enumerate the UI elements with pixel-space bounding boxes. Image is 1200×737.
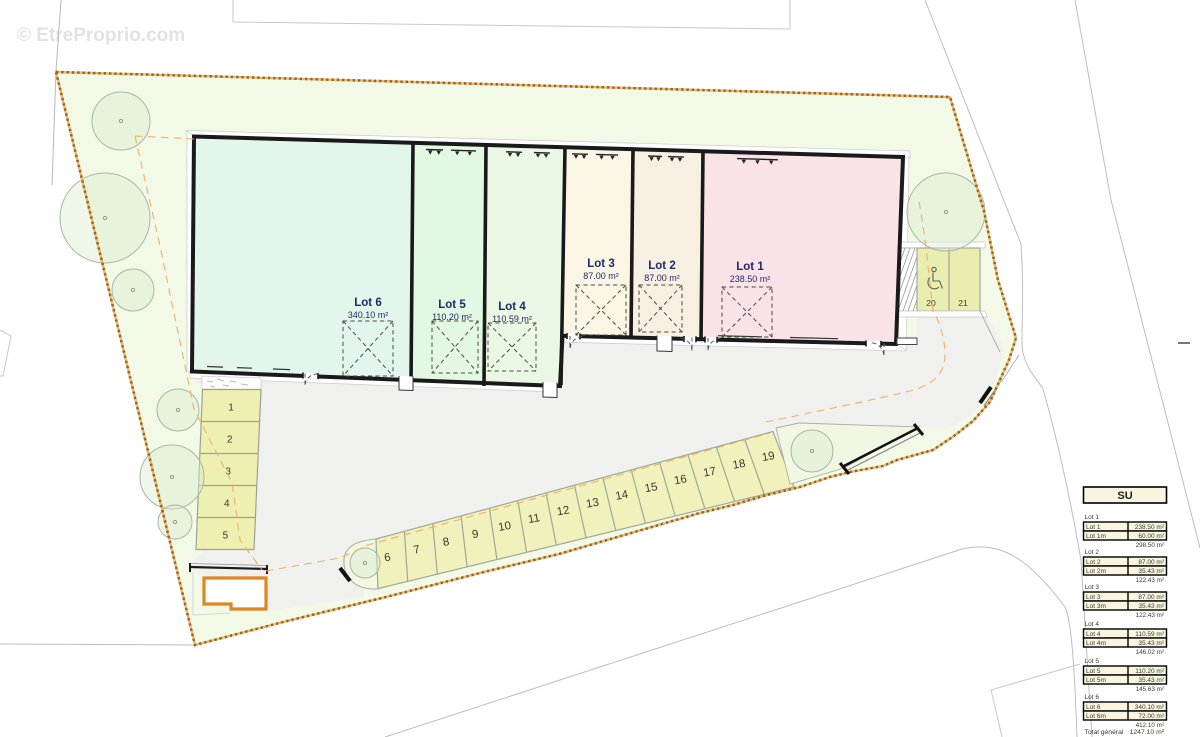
svg-text:Lot 1: Lot 1 bbox=[1085, 514, 1100, 521]
svg-text:Lot 1: Lot 1 bbox=[1086, 524, 1101, 531]
svg-text:87.00 m²: 87.00 m² bbox=[644, 273, 680, 283]
svg-text:Lot 5: Lot 5 bbox=[1086, 668, 1101, 675]
svg-text:1: 1 bbox=[228, 403, 234, 414]
svg-text:35.43 m²: 35.43 m² bbox=[1138, 603, 1164, 610]
svg-text:5: 5 bbox=[223, 531, 229, 542]
svg-text:145.63 m²: 145.63 m² bbox=[1136, 686, 1164, 693]
svg-text:13: 13 bbox=[585, 497, 600, 511]
svg-text:SU: SU bbox=[1117, 490, 1132, 502]
svg-text:72.00 m²: 72.00 m² bbox=[1138, 713, 1164, 720]
svg-text:Lot 2: Lot 2 bbox=[1086, 559, 1101, 566]
svg-text:21: 21 bbox=[958, 298, 968, 308]
svg-text:60.00 m²: 60.00 m² bbox=[1138, 533, 1164, 540]
svg-text:Lot 6: Lot 6 bbox=[354, 297, 381, 309]
svg-text:Lot 4m: Lot 4m bbox=[1086, 640, 1106, 647]
svg-text:110.20 m²: 110.20 m² bbox=[1135, 668, 1165, 675]
svg-text:© EtreProprio.com: © EtreProprio.com bbox=[17, 25, 185, 46]
svg-text:Lot 4: Lot 4 bbox=[1085, 621, 1100, 628]
svg-text:146.02 m²: 146.02 m² bbox=[1136, 649, 1164, 656]
svg-text:Lot 3: Lot 3 bbox=[587, 258, 614, 270]
svg-text:Lot 2: Lot 2 bbox=[648, 260, 675, 272]
svg-text:110.59 m²: 110.59 m² bbox=[1135, 631, 1165, 638]
svg-text:122.43 m²: 122.43 m² bbox=[1136, 577, 1164, 584]
svg-text:Lot 5: Lot 5 bbox=[1085, 658, 1100, 665]
svg-text:19: 19 bbox=[761, 450, 776, 464]
svg-text:Lot 6m: Lot 6m bbox=[1086, 713, 1106, 720]
svg-text:17: 17 bbox=[702, 466, 717, 480]
svg-text:1247.10 m²: 1247.10 m² bbox=[1130, 729, 1165, 736]
svg-text:Lot 3: Lot 3 bbox=[1085, 584, 1100, 591]
svg-text:Lot 3: Lot 3 bbox=[1086, 594, 1101, 601]
svg-text:110.20 m²: 110.20 m² bbox=[432, 312, 472, 322]
svg-text:Lot 5: Lot 5 bbox=[438, 299, 466, 311]
svg-text:122.43 m²: 122.43 m² bbox=[1136, 612, 1164, 619]
svg-text:87.00 m²: 87.00 m² bbox=[583, 271, 619, 281]
svg-text:35.43 m²: 35.43 m² bbox=[1138, 677, 1164, 684]
svg-text:Lot 4: Lot 4 bbox=[498, 301, 526, 313]
svg-text:238.50 m²: 238.50 m² bbox=[730, 274, 771, 284]
svg-text:16: 16 bbox=[673, 473, 688, 487]
svg-text:340.10 m²: 340.10 m² bbox=[348, 310, 389, 320]
svg-text:87.00 m²: 87.00 m² bbox=[1138, 594, 1164, 601]
svg-text:298.50 m²: 298.50 m² bbox=[1136, 542, 1164, 549]
svg-text:11: 11 bbox=[527, 512, 541, 526]
svg-text:4: 4 bbox=[224, 499, 230, 510]
svg-text:Total général: Total général bbox=[1085, 729, 1124, 736]
svg-text:Lot 1: Lot 1 bbox=[736, 261, 764, 273]
svg-text:110.59 m²: 110.59 m² bbox=[492, 314, 532, 324]
svg-text:10: 10 bbox=[497, 520, 512, 534]
svg-text:35.43 m²: 35.43 m² bbox=[1138, 568, 1164, 575]
svg-text:Lot 1m: Lot 1m bbox=[1086, 533, 1106, 540]
svg-text:18: 18 bbox=[732, 458, 747, 472]
svg-text:340.10 m²: 340.10 m² bbox=[1135, 704, 1165, 711]
svg-text:Lot 3m: Lot 3m bbox=[1086, 603, 1106, 610]
svg-text:238.50 m²: 238.50 m² bbox=[1135, 524, 1165, 531]
svg-text:Lot 6: Lot 6 bbox=[1086, 704, 1101, 711]
svg-text:Lot 6: Lot 6 bbox=[1085, 694, 1100, 701]
svg-text:20: 20 bbox=[926, 298, 936, 308]
svg-text:Lot 2m: Lot 2m bbox=[1086, 568, 1106, 575]
svg-text:12: 12 bbox=[556, 504, 571, 518]
svg-text:15: 15 bbox=[644, 481, 659, 495]
svg-text:Lot 5m: Lot 5m bbox=[1086, 677, 1106, 684]
svg-text:2: 2 bbox=[227, 435, 233, 446]
svg-text:87.00 m²: 87.00 m² bbox=[1138, 559, 1164, 566]
svg-text:35.43 m²: 35.43 m² bbox=[1138, 640, 1164, 647]
svg-text:Lot 2: Lot 2 bbox=[1085, 549, 1100, 556]
svg-text:412.10 m²: 412.10 m² bbox=[1136, 722, 1164, 729]
svg-text:Lot 4: Lot 4 bbox=[1086, 631, 1101, 638]
